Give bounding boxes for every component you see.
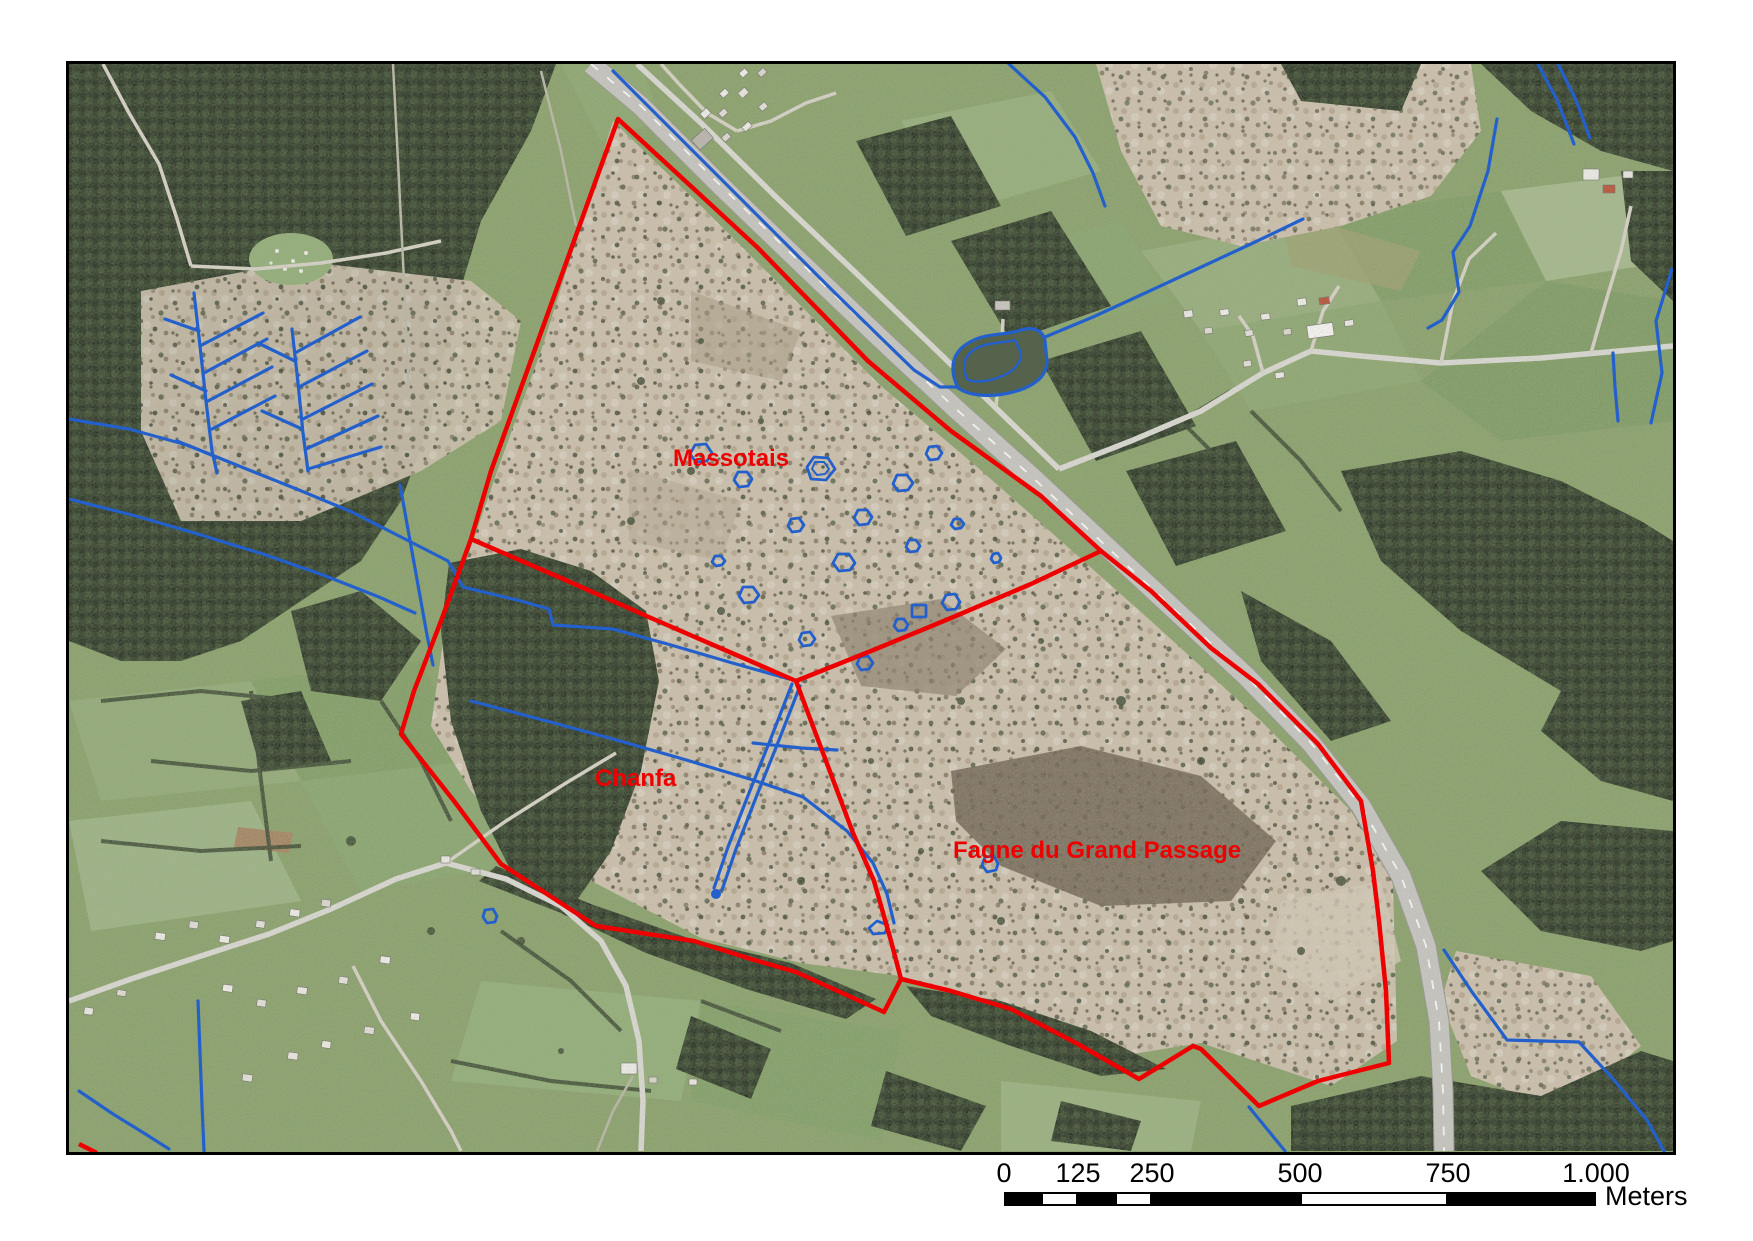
scale-bar: 0 125 250 500 750 1.000 Meters: [1004, 1160, 1704, 1220]
scale-bar-segment: [1041, 1192, 1078, 1206]
scale-bar-segment: [1152, 1192, 1300, 1206]
map-label-massotais: Massotais: [673, 445, 789, 472]
scale-tick-0: 0: [996, 1160, 1011, 1187]
scale-tick-125: 125: [1055, 1160, 1100, 1187]
scale-bar-segment: [1115, 1192, 1152, 1206]
scale-bar-segments: [1004, 1192, 1596, 1206]
map-label-chanfa: Chanfa: [595, 765, 677, 792]
scale-bar-segment: [1300, 1192, 1448, 1206]
scale-tick-250: 250: [1129, 1160, 1174, 1187]
aerial-map: Massotais Chanfa Fagne du Grand Passage: [69, 64, 1673, 1152]
photo-grain-overlay: [69, 64, 1673, 1152]
scale-tick-750: 750: [1425, 1160, 1470, 1187]
scale-bar-segment: [1448, 1192, 1596, 1206]
map-label-fagne-du-grand-passage: Fagne du Grand Passage: [953, 837, 1241, 864]
page: Massotais Chanfa Fagne du Grand Passage …: [0, 0, 1753, 1241]
scale-bar-segment: [1078, 1192, 1115, 1206]
scale-bar-unit-label: Meters: [1605, 1183, 1688, 1210]
scale-tick-500: 500: [1277, 1160, 1322, 1187]
map-frame: Massotais Chanfa Fagne du Grand Passage: [66, 61, 1676, 1155]
scale-bar-segment: [1004, 1192, 1041, 1206]
